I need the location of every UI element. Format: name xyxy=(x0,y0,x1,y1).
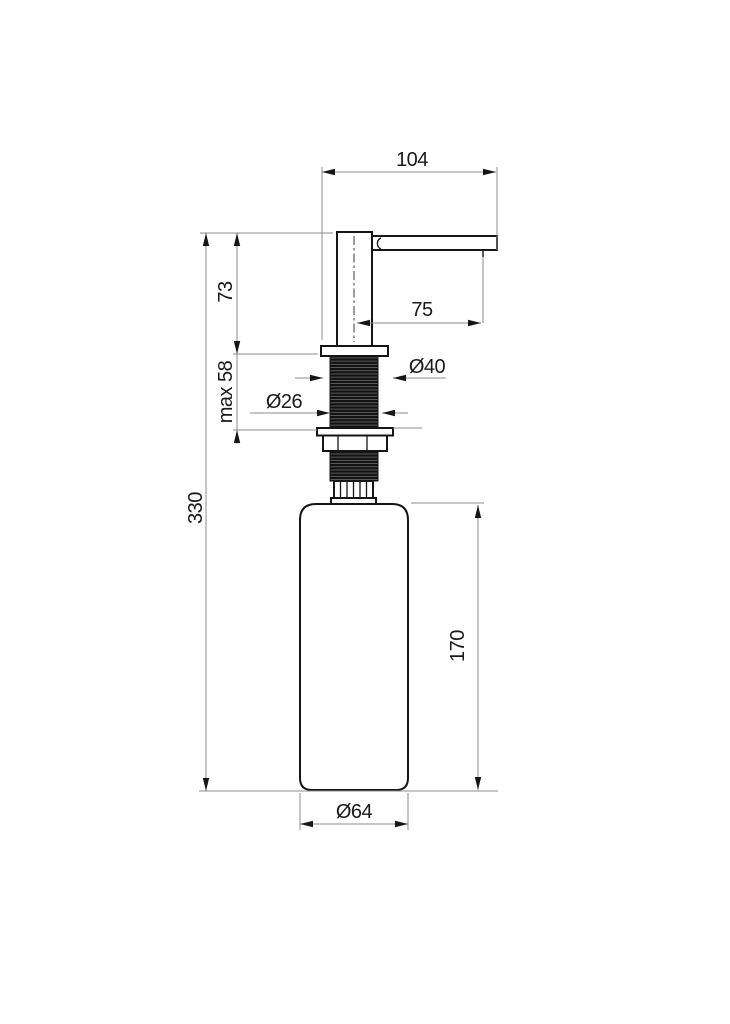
dim-label-d26: Ø26 xyxy=(266,391,303,413)
dim-label-170: 170 xyxy=(447,630,469,662)
arrowhead-up xyxy=(234,233,240,246)
arrowhead-left xyxy=(382,410,395,416)
dim-label-104: 104 xyxy=(396,149,428,171)
dispenser-outline xyxy=(300,232,497,790)
arrowhead-down xyxy=(203,778,209,791)
arrowhead-right xyxy=(395,821,408,827)
upper-thread xyxy=(330,356,378,428)
escutcheon-flange xyxy=(321,346,388,356)
arrowhead-left xyxy=(322,169,335,175)
dim-label-73: 73 xyxy=(215,281,237,303)
arrowhead-right xyxy=(310,375,323,381)
dim-label-d40: Ø40 xyxy=(409,356,446,378)
bottle-outline xyxy=(300,504,408,790)
arrowhead-right xyxy=(317,410,330,416)
arrowhead-up xyxy=(203,233,209,246)
technical-drawing-canvas: 104 75 73 xyxy=(0,0,730,1024)
arrowhead-up xyxy=(475,505,481,518)
arrowhead-right xyxy=(483,169,496,175)
dim-bottle-height: 170 xyxy=(411,503,484,790)
arrowhead-left xyxy=(393,375,406,381)
mounting-washer xyxy=(317,428,393,436)
arrowhead-up xyxy=(234,430,240,443)
arrowhead-down xyxy=(234,341,240,354)
dim-label-max58: max 58 xyxy=(215,360,237,423)
lower-thread xyxy=(330,451,378,481)
arrowhead-right xyxy=(468,320,481,326)
arrowhead-left xyxy=(300,821,313,827)
spout xyxy=(372,236,497,250)
dim-bottle-diameter: Ø64 xyxy=(300,793,408,830)
arrowhead-down xyxy=(475,777,481,790)
dim-spout-reach: 75 xyxy=(357,257,483,326)
dim-label-d64: Ø64 xyxy=(336,801,373,823)
dim-label-330: 330 xyxy=(185,492,207,524)
dim-head-height: 73 xyxy=(200,233,333,354)
adapter-cap xyxy=(331,498,376,504)
dim-label-75: 75 xyxy=(411,299,433,321)
drawing-page: 104 75 73 xyxy=(0,0,730,1024)
dim-thread-diameter: Ø26 xyxy=(250,391,408,416)
hex-nut xyxy=(323,436,387,452)
